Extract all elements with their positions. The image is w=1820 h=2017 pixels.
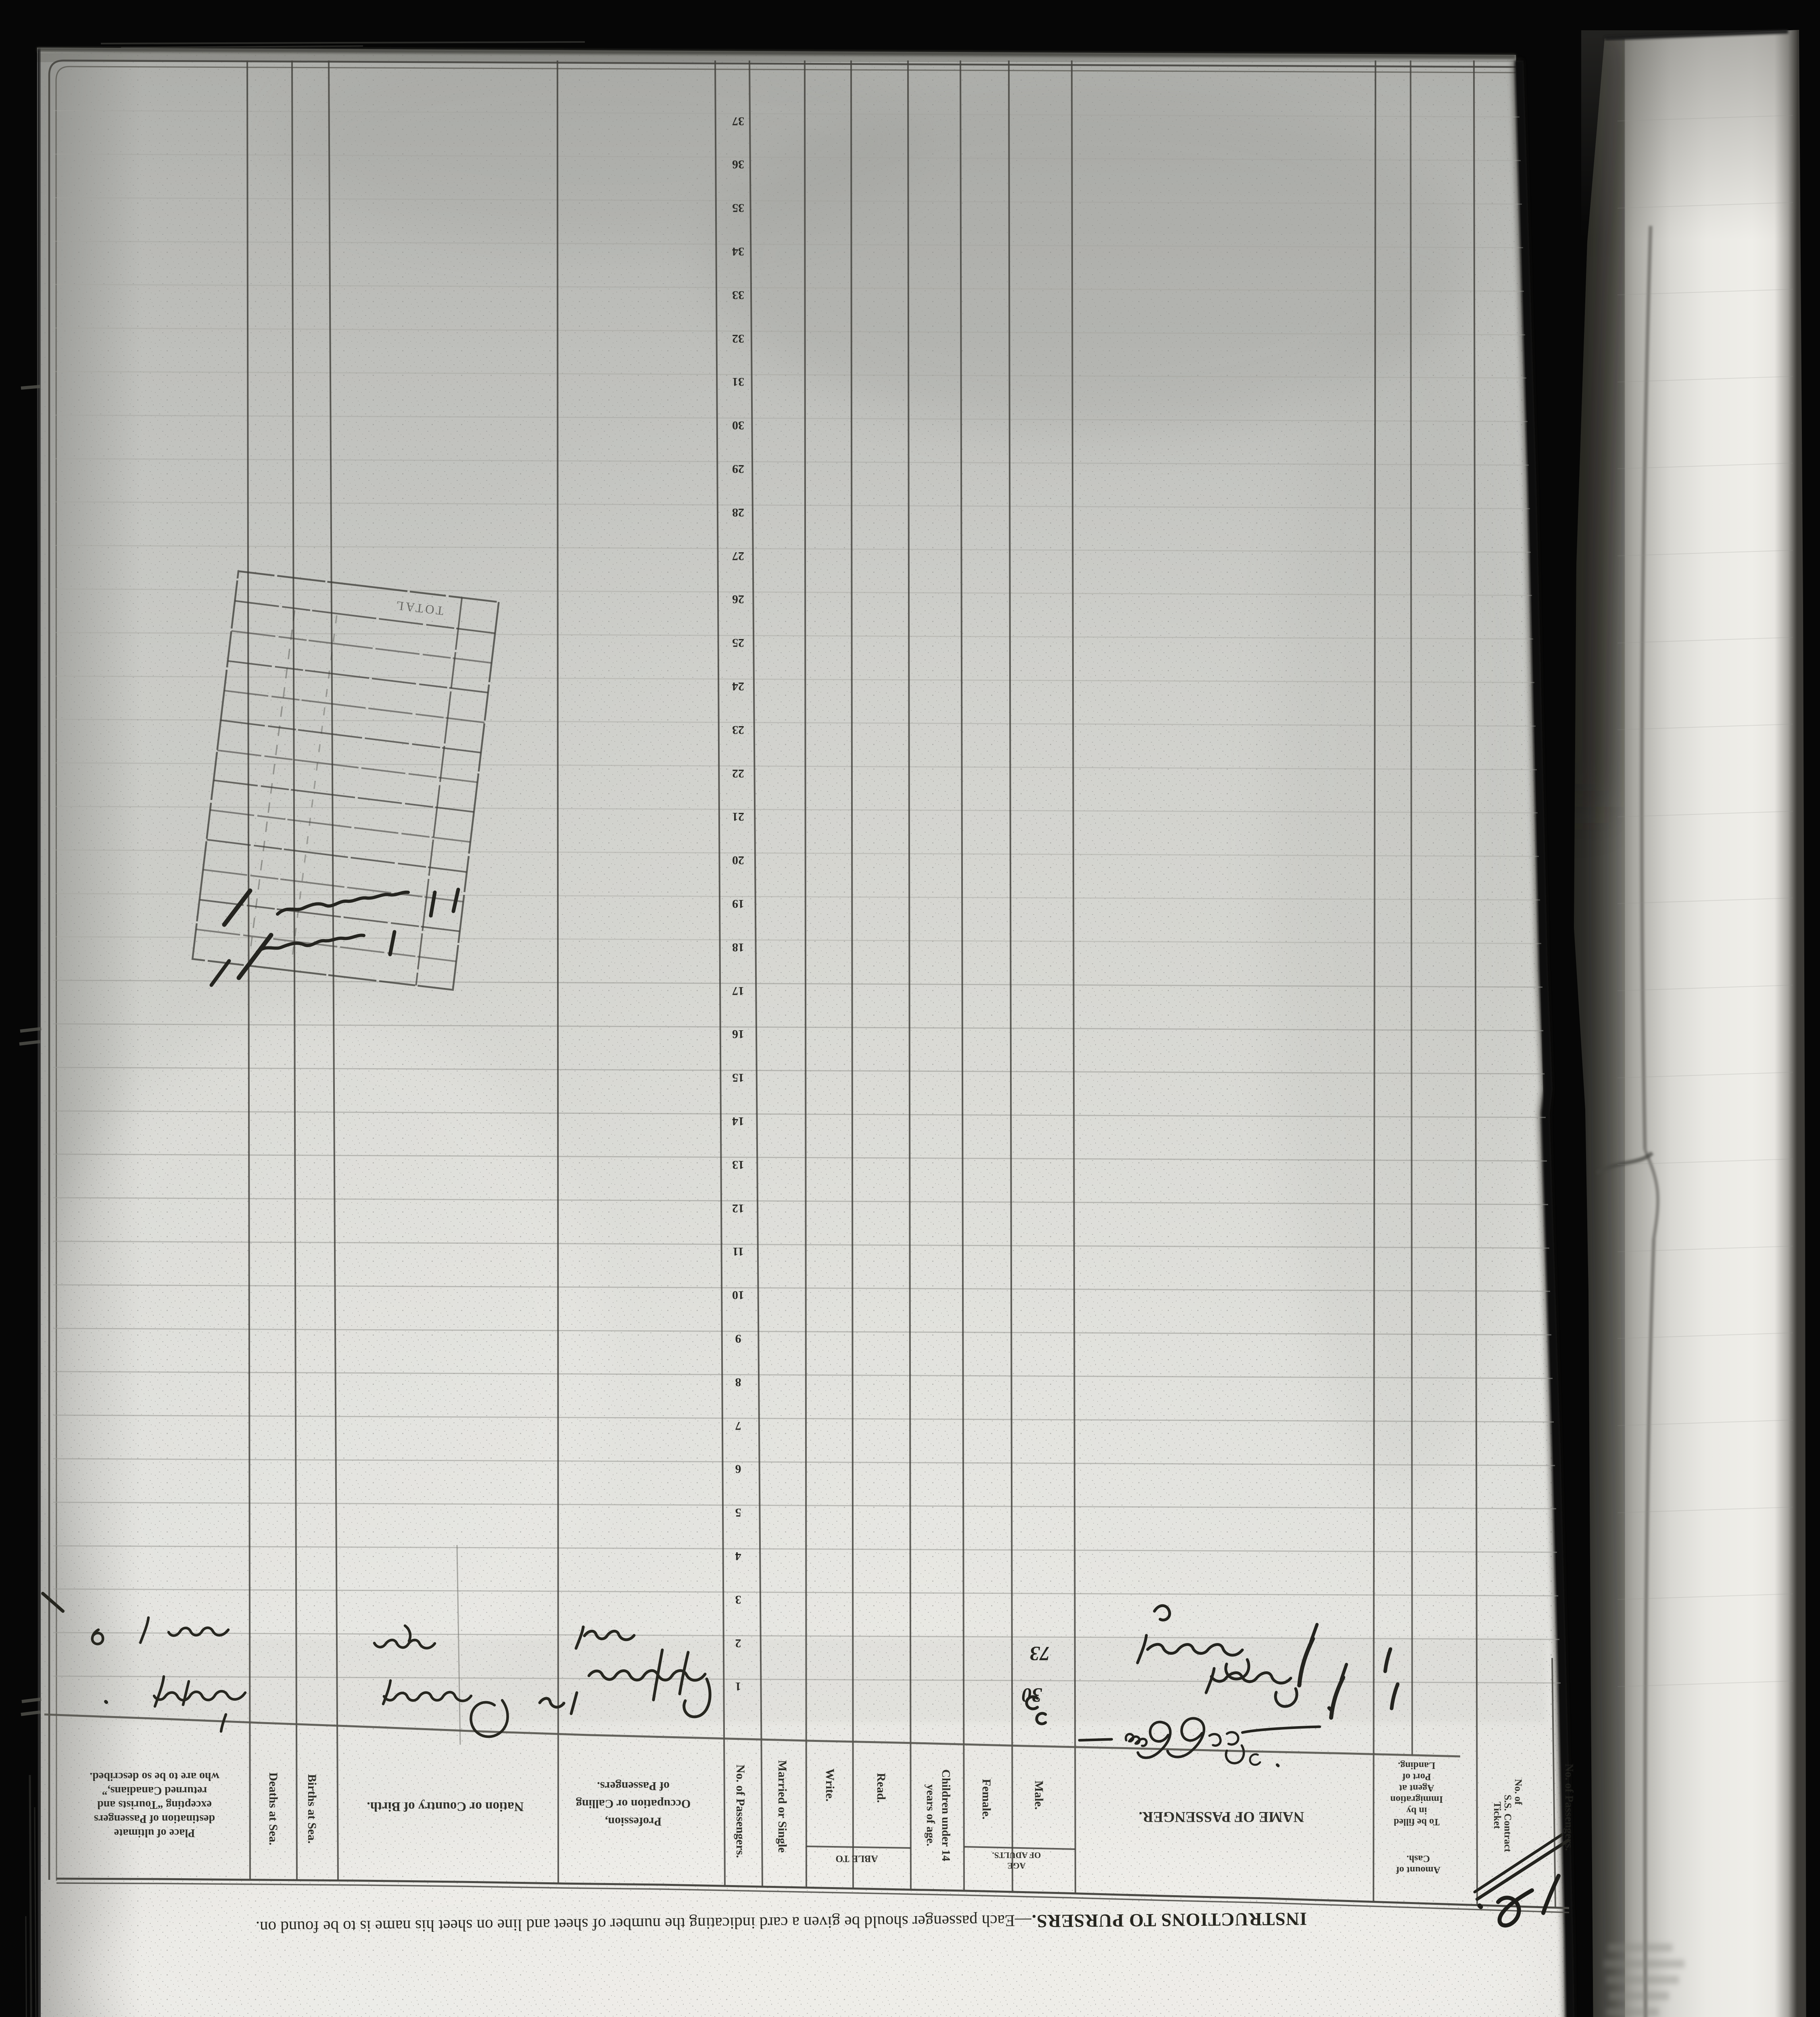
- svg-text:9: 9: [735, 1332, 741, 1345]
- svg-text:who are to be so described.: who are to be so described.: [90, 1770, 219, 1783]
- svg-text:25: 25: [732, 636, 744, 649]
- svg-text:in by: in by: [1406, 1805, 1427, 1816]
- svg-text:10: 10: [732, 1288, 744, 1302]
- svg-text:14: 14: [732, 1115, 744, 1128]
- svg-text:36: 36: [732, 158, 744, 171]
- svg-text:11: 11: [733, 1245, 744, 1258]
- svg-text:No. of Passengers.: No. of Passengers.: [734, 1764, 747, 1858]
- svg-text:29: 29: [732, 462, 744, 476]
- svg-text:years of age.: years of age.: [924, 1784, 937, 1846]
- svg-text:13: 13: [732, 1158, 744, 1171]
- svg-text:NAME OF PASSENGER.: NAME OF PASSENGER.: [1139, 1808, 1304, 1825]
- svg-text:6: 6: [735, 1462, 741, 1476]
- svg-text:21: 21: [732, 810, 744, 823]
- svg-text:24: 24: [732, 680, 744, 693]
- svg-text:15: 15: [732, 1071, 744, 1084]
- svg-text:Births at Sea.: Births at Sea.: [305, 1774, 319, 1844]
- svg-text:37: 37: [732, 115, 744, 128]
- svg-text:Occupation or Calling: Occupation or Calling: [576, 1797, 691, 1810]
- svg-text:12: 12: [732, 1202, 744, 1215]
- svg-text:27: 27: [732, 549, 744, 563]
- svg-text:34: 34: [732, 245, 744, 258]
- svg-text:Profession,: Profession,: [605, 1815, 662, 1828]
- svg-text:Write.: Write.: [823, 1769, 837, 1802]
- svg-text:OF ADULTS.: OF ADULTS.: [992, 1850, 1041, 1860]
- svg-text:35: 35: [732, 201, 744, 215]
- svg-text:17: 17: [732, 984, 744, 998]
- svg-text:23: 23: [732, 723, 744, 737]
- svg-text:Immigration: Immigration: [1390, 1794, 1443, 1804]
- svg-text:No. of: No. of: [1513, 1779, 1524, 1805]
- svg-text:Amount of: Amount of: [1396, 1865, 1440, 1875]
- svg-text:33: 33: [732, 288, 744, 302]
- svg-text:returned Canadians,”: returned Canadians,”: [102, 1784, 207, 1797]
- svg-text:Married or Single: Married or Single: [776, 1760, 789, 1852]
- svg-text:Agent at: Agent at: [1399, 1783, 1434, 1793]
- svg-text:28: 28: [732, 506, 744, 519]
- svg-text:Nation or Country of Birth.: Nation or Country of Birth.: [367, 1799, 524, 1814]
- svg-text:31: 31: [732, 375, 744, 388]
- svg-text:No. of Passengers.: No. of Passengers.: [1563, 1764, 1575, 1851]
- svg-text:Children under 14: Children under 14: [939, 1769, 952, 1861]
- svg-text:excepting “Tourists and: excepting “Tourists and: [97, 1798, 212, 1811]
- svg-text:Female.: Female.: [980, 1779, 993, 1820]
- svg-text:18: 18: [732, 941, 744, 954]
- svg-text:20: 20: [732, 854, 744, 867]
- svg-text:22: 22: [732, 767, 744, 780]
- svg-text:26: 26: [732, 593, 744, 606]
- svg-text:Cash.: Cash.: [1407, 1853, 1430, 1864]
- svg-text:To be filled: To be filled: [1393, 1817, 1439, 1827]
- svg-text:AGE: AGE: [1007, 1861, 1026, 1871]
- svg-text:1: 1: [735, 1680, 741, 1693]
- svg-text:16: 16: [732, 1027, 744, 1041]
- svg-text:3: 3: [735, 1593, 741, 1606]
- svg-text:Place of ultimate: Place of ultimate: [114, 1827, 195, 1839]
- svg-text:ABLE TO: ABLE TO: [835, 1853, 878, 1864]
- svg-text:19: 19: [732, 897, 744, 910]
- svg-text:Landing.: Landing.: [1398, 1760, 1436, 1771]
- svg-text:5: 5: [735, 1506, 741, 1519]
- svg-text:Port of: Port of: [1402, 1771, 1431, 1782]
- svg-text:73: 73: [1030, 1643, 1050, 1665]
- svg-text:of Passengers.: of Passengers.: [597, 1779, 670, 1793]
- svg-text:destination of Passengers: destination of Passengers: [94, 1812, 215, 1825]
- svg-text:30: 30: [732, 419, 744, 432]
- svg-text:Male.: Male.: [1032, 1781, 1046, 1810]
- svg-text:7: 7: [735, 1419, 741, 1432]
- svg-text:Deaths at Sea.: Deaths at Sea.: [267, 1773, 280, 1846]
- svg-text:32: 32: [732, 332, 744, 345]
- svg-text:4: 4: [735, 1549, 741, 1563]
- svg-text:2: 2: [735, 1637, 741, 1650]
- svg-text:8: 8: [735, 1376, 741, 1389]
- svg-text:S.S. Contract: S.S. Contract: [1502, 1795, 1513, 1852]
- svg-text:Ticket: Ticket: [1492, 1802, 1503, 1829]
- svg-text:Read.: Read.: [875, 1773, 888, 1803]
